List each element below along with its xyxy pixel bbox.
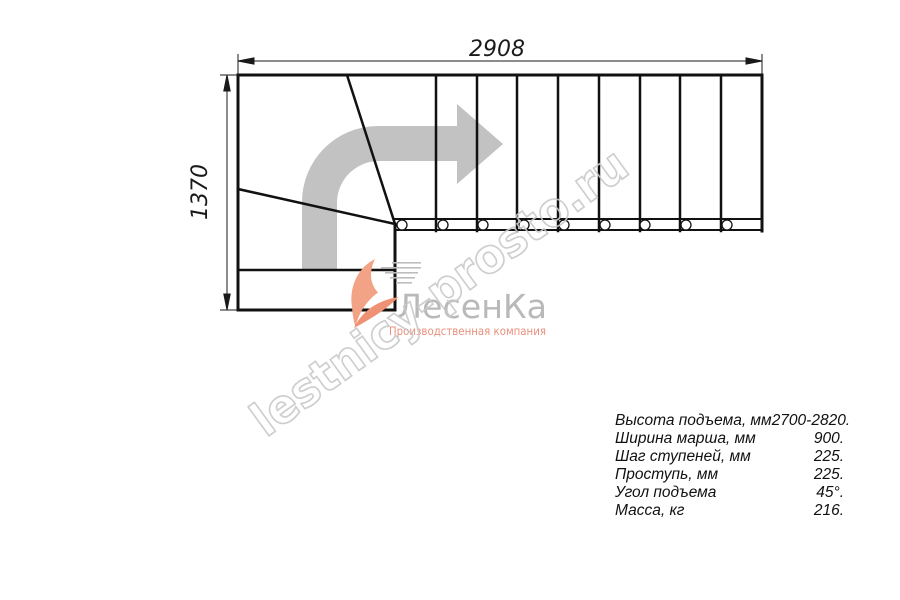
spec-row-step-pitch: Шаг ступеней, мм 225. bbox=[615, 448, 844, 466]
spec-label: Ширина марша, мм bbox=[615, 430, 756, 448]
spec-row-mass: Масса, кг 216. bbox=[615, 502, 844, 520]
top-dim-arrow-left bbox=[238, 58, 254, 64]
spec-row-tread: Проступь, мм 225. bbox=[615, 466, 844, 484]
top-dim-arrow-right bbox=[746, 58, 762, 64]
site-watermark: lestnicy-prosto.ru bbox=[241, 138, 639, 448]
spec-row-height: Высота подъема, мм 2700-2820. bbox=[615, 412, 844, 430]
spec-value: 225. bbox=[814, 466, 844, 484]
spec-row-flight-width: Ширина марша, мм 900. bbox=[615, 430, 844, 448]
left-dim-arrow-top bbox=[224, 75, 230, 91]
width-dimension-label: 2908 bbox=[469, 37, 525, 62]
spec-label: Масса, кг bbox=[615, 502, 684, 520]
spec-value: 900. bbox=[814, 430, 844, 448]
spec-label: Шаг ступеней, мм bbox=[615, 448, 751, 466]
spec-value: 2700-2820. bbox=[772, 412, 850, 430]
spec-label: Проступь, мм bbox=[615, 466, 718, 484]
specs-table: Высота подъема, мм 2700-2820. Ширина мар… bbox=[615, 412, 844, 519]
spec-label: Высота подъема, мм bbox=[615, 412, 772, 430]
left-dim-arrow-bottom bbox=[224, 294, 230, 310]
spec-value: 216. bbox=[814, 502, 844, 520]
page: 2908 1370 ЛесенКа Производственная компа… bbox=[0, 0, 900, 600]
spec-row-angle: Угол подъема 45°. bbox=[615, 484, 844, 502]
spec-value: 225. bbox=[814, 448, 844, 466]
height-dimension-label: 1370 bbox=[188, 164, 213, 220]
spec-value: 45°. bbox=[816, 484, 844, 502]
spec-label: Угол подъема bbox=[615, 484, 716, 502]
